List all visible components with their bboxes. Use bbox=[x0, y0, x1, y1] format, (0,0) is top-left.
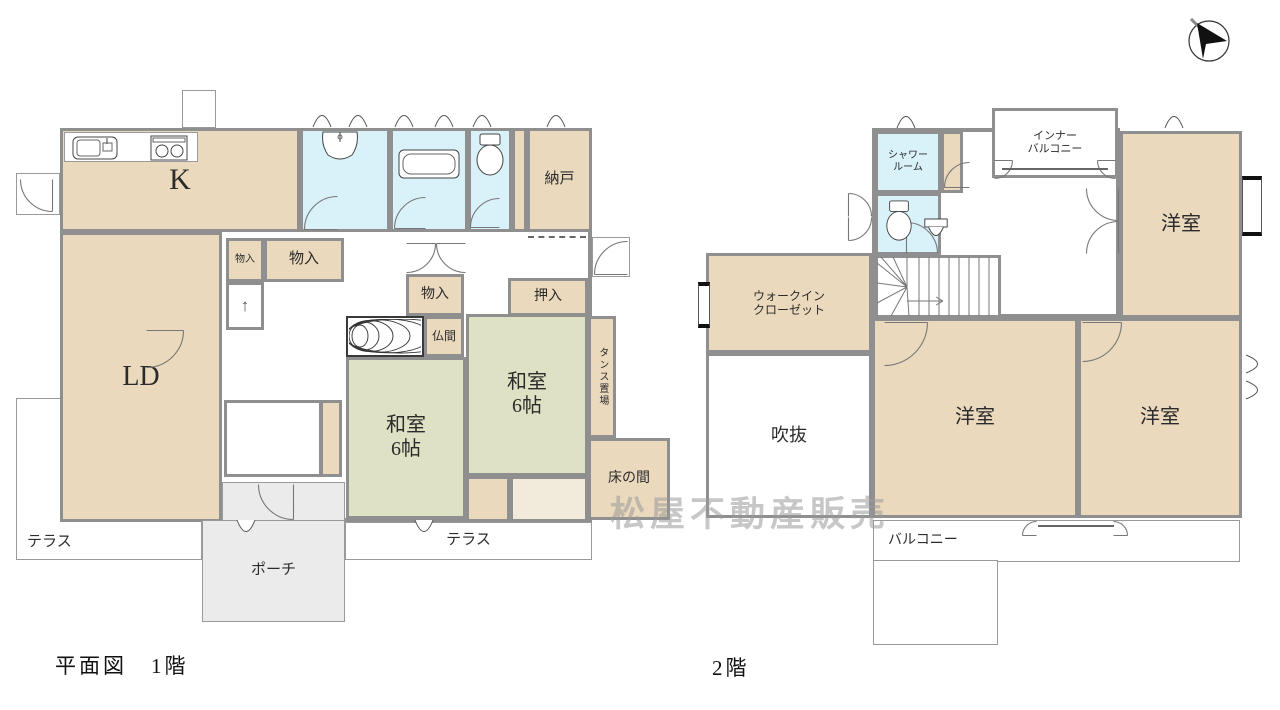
window-icon bbox=[896, 113, 916, 129]
monoire-mid-label: 物入 bbox=[289, 251, 319, 269]
inner-balcony-label: インナー バルコニー bbox=[1028, 130, 1083, 156]
butsuma: 仏間 bbox=[424, 316, 464, 357]
door-arc bbox=[594, 241, 628, 275]
door-arc bbox=[1022, 521, 1037, 536]
window-icon bbox=[348, 112, 368, 128]
engawa bbox=[510, 476, 588, 522]
yoshitsu-southeast-label: 洋室 bbox=[1140, 406, 1180, 430]
floorplan-image: 松屋不動産販売 平面図 1階 2階 テラステラスK納戸LD物入物入↑物入仏間押入… bbox=[0, 0, 1280, 710]
tokonoma-label: 床の間 bbox=[608, 471, 650, 488]
washitsu-left: 和室 6帖 bbox=[346, 357, 466, 519]
bay-window-east bbox=[1242, 176, 1262, 236]
wood-icon bbox=[349, 319, 421, 354]
stove-icon bbox=[150, 135, 188, 161]
monoire-mid: 物入 bbox=[264, 238, 344, 282]
oshiire: 押入 bbox=[508, 278, 588, 316]
sink_s-icon bbox=[922, 218, 950, 242]
door-arc bbox=[848, 193, 872, 217]
shower-room-label: シャワー ルーム bbox=[888, 150, 928, 174]
yoshitsu-northeast-label: 洋室 bbox=[1161, 213, 1201, 237]
window-sill-line bbox=[1038, 525, 1114, 527]
window-icon bbox=[1164, 113, 1184, 129]
door-arc bbox=[944, 162, 970, 188]
tub-icon bbox=[398, 149, 460, 179]
stairs-1f-label: ↑ bbox=[241, 296, 250, 316]
fukinuke-void-label: 吹抜 bbox=[771, 425, 807, 446]
monoire-center-label: 物入 bbox=[421, 287, 449, 304]
floor-2-title: 2階 bbox=[712, 652, 750, 682]
oshiire-label: 押入 bbox=[534, 289, 562, 306]
floor-1-title: 平面図 1階 bbox=[55, 650, 189, 680]
porch-label: ポーチ bbox=[251, 562, 296, 580]
walk-in-closet-label: ウォークイン クローゼット bbox=[753, 289, 825, 317]
window-icon bbox=[434, 112, 454, 128]
vanity-icon bbox=[320, 131, 360, 161]
door-arc bbox=[20, 179, 53, 212]
door-arc bbox=[304, 196, 338, 230]
monoire-center: 物入 bbox=[406, 274, 464, 316]
watermark-text: 松屋不動産販売 bbox=[610, 486, 890, 537]
stairs-1f: ↑ bbox=[226, 282, 264, 330]
genkan-tile bbox=[224, 400, 322, 477]
walk-in-closet: ウォークイン クローゼット bbox=[706, 253, 872, 353]
door-arc bbox=[848, 217, 872, 241]
opening-dashed-line bbox=[528, 236, 586, 238]
door-arc bbox=[1086, 188, 1119, 221]
washitsu-left-label: 和室 6帖 bbox=[386, 414, 426, 461]
window-icon bbox=[414, 519, 434, 535]
service-landing-north bbox=[182, 90, 216, 128]
sink_k-icon bbox=[72, 136, 118, 160]
toilet-icon bbox=[474, 133, 506, 177]
window-icon bbox=[546, 112, 566, 128]
monoire-small-label: 物入 bbox=[235, 254, 255, 266]
door-arc bbox=[1082, 322, 1122, 362]
door-arc bbox=[470, 198, 500, 228]
door-arc bbox=[406, 243, 436, 273]
door-arc bbox=[1113, 521, 1128, 536]
shoe-cabinet bbox=[320, 400, 342, 477]
nando: 納戸 bbox=[527, 128, 592, 232]
window-sill-line bbox=[1002, 168, 1108, 170]
north-arrow-icon bbox=[1182, 12, 1234, 64]
door-arc bbox=[884, 322, 928, 366]
window-icon bbox=[312, 112, 332, 128]
nando-label: 納戸 bbox=[544, 171, 574, 189]
butsuma-label: 仏間 bbox=[432, 329, 456, 343]
closet-strip bbox=[512, 128, 527, 232]
monoire-small: 物入 bbox=[226, 238, 264, 282]
washitsu-right: 和室 6帖 bbox=[466, 314, 588, 476]
toilet-icon bbox=[884, 200, 914, 242]
genkan-step bbox=[466, 476, 510, 522]
kitchen-label: K bbox=[169, 162, 191, 197]
window-wic-west bbox=[698, 282, 710, 328]
yoshitsu-northeast: 洋室 bbox=[1120, 131, 1242, 318]
window-icon bbox=[1245, 380, 1261, 400]
terrace-left-label: テラス bbox=[17, 534, 72, 559]
door-arc bbox=[394, 197, 426, 229]
living-dining: LD bbox=[60, 232, 222, 522]
terrace-right-label: テラス bbox=[446, 532, 491, 550]
stairs2-icon bbox=[877, 257, 999, 316]
window-icon bbox=[472, 112, 492, 128]
door-arc bbox=[1086, 221, 1119, 254]
door-arc bbox=[258, 484, 294, 520]
window-icon bbox=[236, 519, 256, 535]
door-arc bbox=[146, 330, 184, 368]
washitsu-right-label: 和室 6帖 bbox=[507, 371, 547, 418]
yoshitsu-center-label: 洋室 bbox=[955, 406, 995, 430]
window-icon bbox=[394, 112, 414, 128]
balcony-deep bbox=[873, 560, 998, 645]
tansu-okiba: タンス置場 bbox=[588, 316, 616, 438]
terrace-right: テラス bbox=[345, 522, 592, 560]
tansu-okiba-label: タンス置場 bbox=[596, 347, 608, 407]
door-arc bbox=[436, 243, 466, 273]
shower-room: シャワー ルーム bbox=[875, 131, 941, 193]
window-icon bbox=[1245, 354, 1261, 374]
porch: ポーチ bbox=[202, 520, 345, 622]
